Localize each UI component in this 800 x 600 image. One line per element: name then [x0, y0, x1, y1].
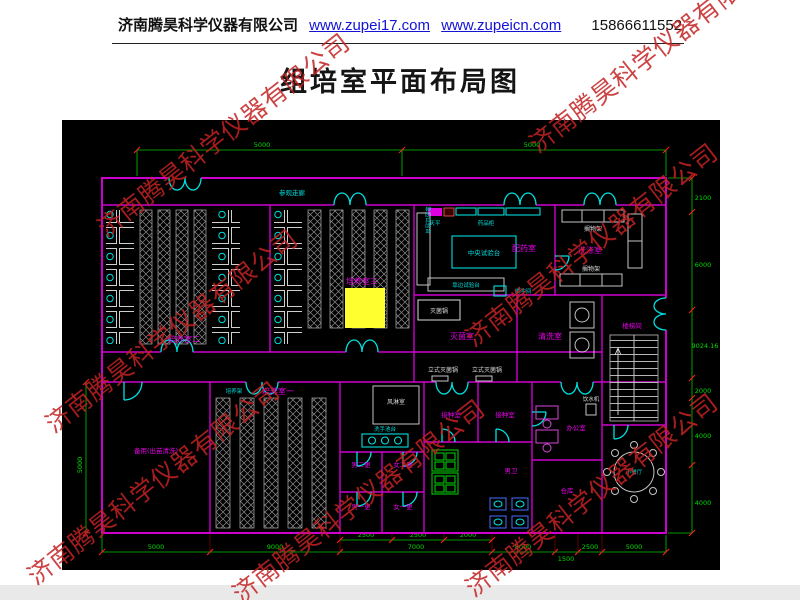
footer-strip	[0, 585, 800, 600]
water-dispenser	[586, 404, 596, 415]
dim-bottom-2: 9000	[267, 543, 284, 551]
side-bench-label: 靠边试验台	[452, 281, 480, 289]
office-desks	[536, 406, 558, 452]
burner-box	[444, 208, 454, 216]
link-zupei17[interactable]: www.zupei17.com	[309, 17, 430, 34]
header: 济南腾昊科学仪器有限公司 www.zupei17.com www.zupeicn…	[0, 14, 800, 35]
change-m1-label: 男一更	[351, 503, 371, 511]
change-m2-label: 男二更	[351, 461, 371, 469]
dim-right-4: 2000	[695, 387, 712, 395]
header-divider	[112, 43, 684, 44]
sterilizing-label: 灭菌室	[450, 331, 474, 341]
vert-autoclave-1: 立式灭菌锅	[428, 366, 458, 374]
toilet-label: 男卫	[505, 467, 519, 475]
washing-machines	[570, 302, 594, 358]
company-name: 济南腾昊科学仪器有限公司	[118, 17, 298, 34]
phone-number: 15866611552	[591, 17, 682, 34]
dim-top-1: 5000	[254, 141, 271, 149]
dim-left-1: 5000	[76, 457, 84, 474]
dispensing-label: 配药室	[512, 243, 536, 253]
dim-right-3: 9024.16	[692, 342, 719, 350]
stairs	[610, 335, 658, 421]
sink-label: 洗手池台	[374, 425, 397, 433]
water-dispenser-label: 饮水机	[583, 395, 600, 403]
culture-racks	[106, 210, 409, 528]
link-zupeicn[interactable]: www.zupeicn.com	[441, 17, 561, 34]
dim-bottom-3: 7000	[408, 543, 425, 551]
dim-right-6: 4000	[695, 499, 712, 507]
floorplan-image: 5000 5000 2100 6000 9024.16 2000 4000 40…	[62, 120, 720, 570]
dim-top-2: 5000	[524, 141, 541, 149]
dim-bottom-4: 8000	[515, 543, 532, 551]
side-bench-v-label: 靠边试验台	[424, 206, 432, 234]
dim-right-2: 6000	[695, 261, 712, 269]
toilet-fixtures	[490, 498, 528, 528]
change-f1-label: 女一更	[393, 502, 413, 511]
culture2-label: 培养室二	[168, 334, 200, 344]
dim-bottom-5: 1500	[558, 555, 575, 563]
floor-plan-canvas: 5000 5000 2100 6000 9024.16 2000 4000 40…	[62, 120, 720, 570]
autoclave-label: 灭菌锅	[430, 307, 448, 315]
page-title: 组培室平面布局图	[0, 60, 800, 99]
buffer-label: 缓冲间	[515, 287, 532, 295]
corridor-label: 参观走廊	[279, 188, 306, 197]
spare-label: 备用(出苗清洗)	[134, 446, 178, 455]
dim-bottom-1: 5000	[148, 543, 165, 551]
dim-right-5: 4000	[695, 432, 712, 440]
balance-label: 天平	[429, 220, 441, 227]
page: 济南腾昊科学仪器有限公司 www.zupei17.com www.zupeicn…	[0, 0, 800, 600]
central-bench-label: 中央试验台	[468, 248, 501, 257]
vert-autoclave-2: 立式灭菌锅	[472, 366, 502, 374]
cabinet-label: 药品柜	[478, 219, 495, 227]
clean-benches	[432, 450, 458, 494]
cleaning-label: 清洗室	[538, 331, 562, 341]
shelf-label-1: 搁物架	[584, 225, 602, 233]
rack-unit-column	[106, 210, 134, 344]
culture1-label: 培养室一	[262, 386, 294, 396]
office-label: 办公室	[566, 423, 586, 432]
culture3-label: 培养室三	[346, 276, 378, 286]
change-f2-label: 女二更	[393, 460, 413, 469]
stairwell-label: 楼梯间	[622, 321, 642, 330]
highlight-area	[345, 288, 385, 328]
inoculation1-label: 接种室	[441, 410, 461, 419]
dining-label: 小餐厅	[626, 468, 643, 476]
shelf-label-2: 搁物架	[582, 265, 600, 273]
air-shower-label: 风淋室	[387, 398, 405, 406]
dim-bottom-7: 5000	[626, 543, 643, 551]
inoculation2-label: 接种室	[495, 410, 515, 419]
rack-label: 培养架	[226, 387, 243, 395]
sink-bench	[362, 434, 408, 447]
dim-bottom-6: 2500	[582, 543, 599, 551]
rack-unit-column	[212, 210, 240, 344]
storage-label: 仓库	[561, 486, 575, 495]
dim-right-1: 2100	[695, 194, 712, 202]
washing-label: 洗涤室	[578, 245, 602, 255]
rack-unit-column	[274, 210, 302, 344]
